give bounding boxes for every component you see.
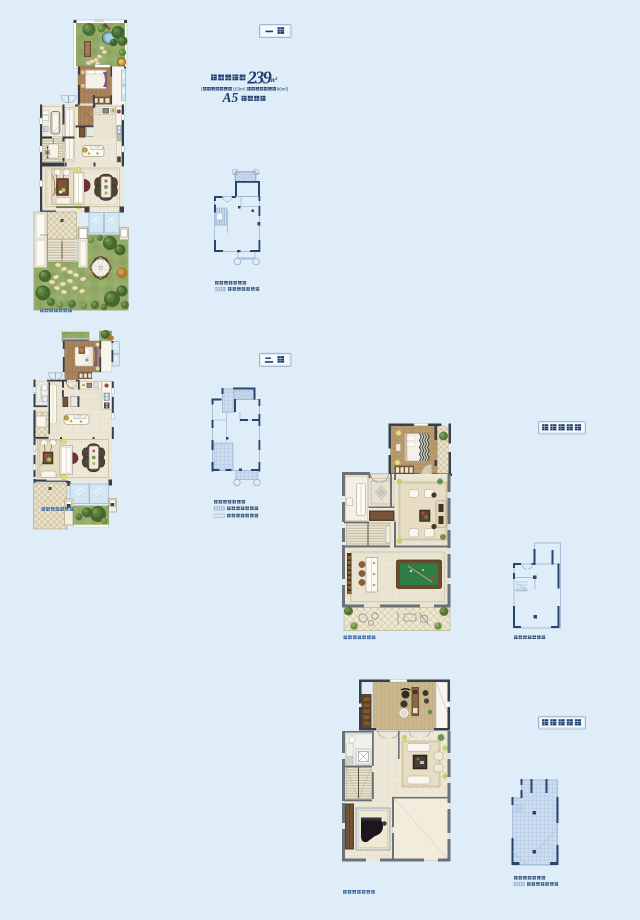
svg-text:,: , <box>245 87 246 92</box>
svg-text:239: 239 <box>247 68 272 88</box>
svg-text:A5: A5 <box>222 90 239 105</box>
svg-text:m²: m² <box>269 75 278 84</box>
